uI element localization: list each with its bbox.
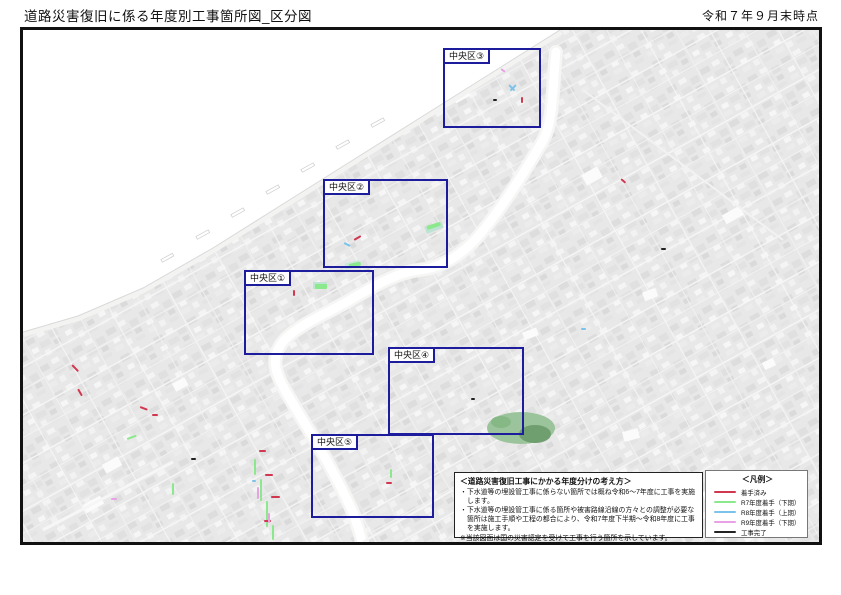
work-mark: [265, 474, 273, 476]
note-line: ※当該図面は国の災害認定を受けて工事を行う箇所を示しています。: [460, 534, 697, 543]
legend-title: ＜凡例＞: [714, 474, 801, 485]
legend-label-r8: R8年度着手（上期）: [741, 508, 800, 517]
work-mark: [257, 487, 259, 499]
legend-swatch-done: [714, 531, 736, 534]
as-of-date-label: 令和７年９月末時点: [702, 7, 819, 24]
work-mark: [172, 483, 174, 495]
district-label-chuo-2: 中央区②: [323, 179, 370, 195]
district-box-chuo-4: 中央区④: [388, 347, 524, 435]
legend-row: R9年度着手（下期）: [714, 517, 801, 527]
work-mark: [111, 498, 117, 500]
legend-swatch-r8: [714, 511, 736, 514]
district-box-chuo-5: 中央区⑤: [311, 434, 434, 518]
note-line: ・下水道等の埋設管工事に係る箇所や被害路線沿線の方々との調整が必要な箇所は施工手…: [460, 506, 697, 533]
legend-row: 着手済み: [714, 487, 801, 497]
work-mark: [252, 480, 256, 482]
work-mark: [260, 479, 262, 501]
work-mark: [254, 459, 256, 475]
legend-row: 工事完了: [714, 527, 801, 537]
work-mark: [272, 525, 274, 540]
legend-swatch-r9: [714, 521, 736, 524]
legend-label-started: 着手済み: [741, 488, 767, 497]
legend-label-r9: R9年度着手（下期）: [741, 518, 800, 527]
district-box-chuo-2: 中央区②: [323, 179, 448, 268]
work-mark: [259, 450, 266, 452]
legend-row: R7年度着手（下期）: [714, 497, 801, 507]
note-box-title: ＜道路災害復旧工事にかかる年度分けの考え方＞: [460, 476, 697, 487]
district-box-chuo-3: 中央区③: [443, 48, 541, 128]
legend-box: ＜凡例＞ 着手済み R7年度着手（下期） R8年度着手（上期） R9年度着手（下…: [705, 470, 808, 538]
work-mark: [661, 248, 666, 250]
legend-row: R8年度着手（上期）: [714, 507, 801, 517]
work-mark: [191, 458, 196, 460]
legend-swatch-r7: [714, 501, 736, 504]
district-label-chuo-3: 中央区③: [443, 48, 490, 64]
work-mark: [581, 328, 586, 330]
work-mark: [268, 513, 270, 523]
legend-label-r7: R7年度着手（下期）: [741, 498, 800, 507]
note-line: ※当該図面は現時点での計画であり、地元調整の内容や工事の進捗状況などに応じて変更…: [460, 543, 697, 545]
page-title: 道路災害復旧に係る年度別工事箇所図_区分図: [24, 5, 312, 25]
district-label-chuo-5: 中央区⑤: [311, 434, 358, 450]
district-label-chuo-4: 中央区④: [388, 347, 435, 363]
note-box: ＜道路災害復旧工事にかかる年度分けの考え方＞ ・下水道等の埋設管工事に係らない箇…: [454, 472, 703, 538]
legend-label-done: 工事完了: [741, 528, 767, 537]
work-mark: [271, 496, 280, 498]
page: 道路災害復旧に係る年度別工事箇所図_区分図 令和７年９月末時点: [0, 0, 841, 595]
district-box-chuo-1: 中央区①: [244, 270, 374, 355]
district-label-chuo-1: 中央区①: [244, 270, 291, 286]
legend-swatch-started: [714, 491, 736, 494]
work-mark: [152, 414, 158, 416]
note-line: ・下水道等の埋設管工事に係らない箇所では概ね令和6～7年度に工事を実施します。: [460, 488, 697, 506]
map-frame: 中央区③ 中央区② 中央区① 中央区④ 中央区⑤ ＜道路災害復旧工事にかかる年度…: [20, 27, 822, 545]
